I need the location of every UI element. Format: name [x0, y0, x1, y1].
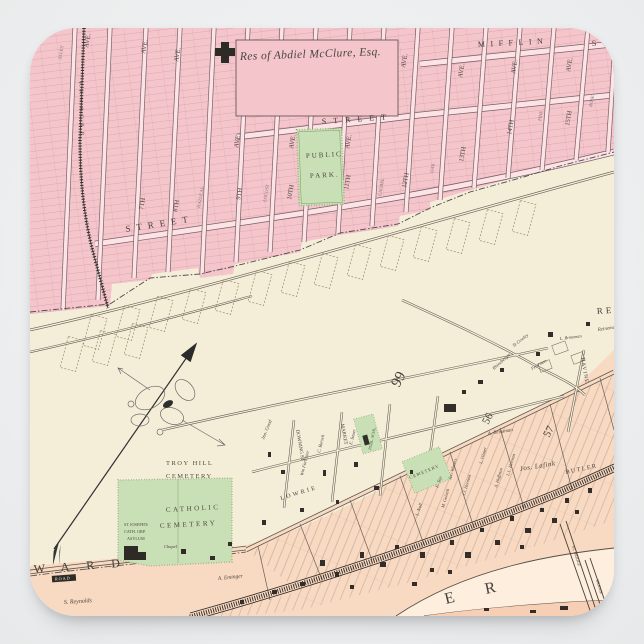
asylum-label-1: ST JOSEPH'S: [124, 522, 149, 527]
troy-hill-label-1: TROY HILL: [166, 460, 213, 467]
asylum-label-2: CATH. ORP.: [124, 529, 146, 534]
product-photo-stage: Res of Abdiel McClure, Esq. MIFFLIN S ST…: [0, 0, 644, 644]
troy-hill-label-2: CEMETERY: [166, 473, 213, 480]
public-park-block: [297, 128, 345, 206]
atlas-map: Res of Abdiel McClure, Esq. MIFFLIN S ST…: [30, 28, 614, 616]
mifflin-s-label: S: [592, 39, 597, 48]
square-map-sticker: Res of Abdiel McClure, Esq. MIFFLIN S ST…: [30, 28, 614, 616]
public-park-label-2: PARK.: [310, 170, 340, 180]
asylum-label-3: ASYLUM: [127, 536, 145, 541]
chapel-label: Chapel: [164, 544, 178, 549]
reserve-label: RE: [596, 305, 614, 316]
chapel-building: [181, 549, 186, 554]
